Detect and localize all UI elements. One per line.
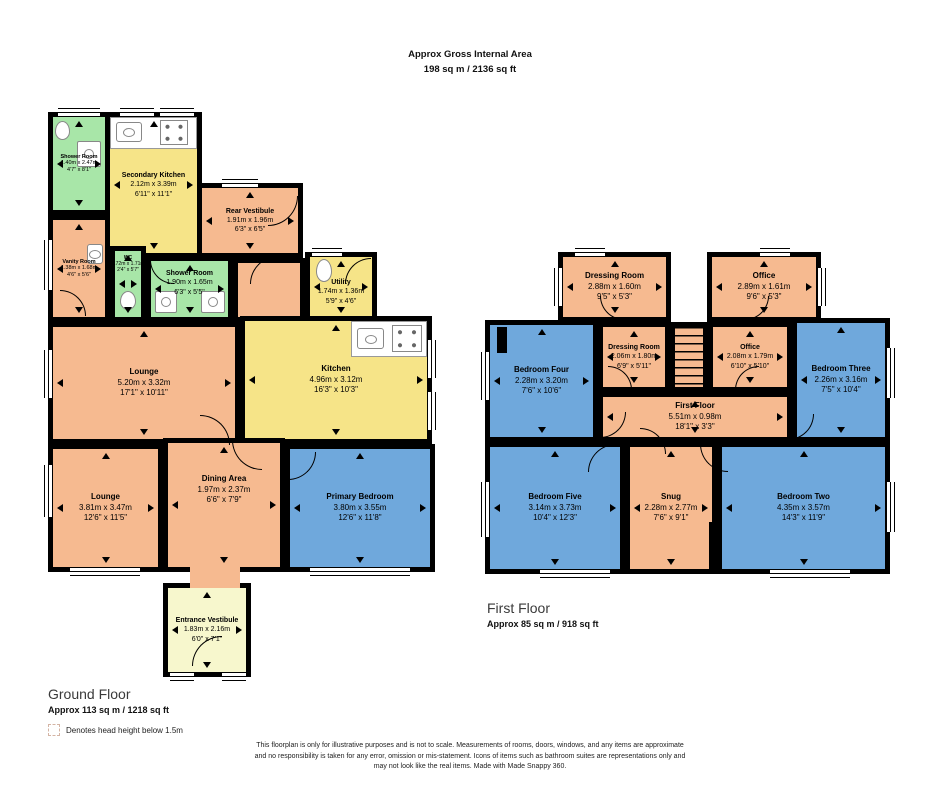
measure-arrow [420, 504, 426, 512]
measure-arrow [806, 283, 812, 291]
room-name: Office [727, 343, 773, 352]
room-name: Lounge [118, 367, 171, 377]
window-icon [44, 240, 53, 290]
measure-arrow [607, 353, 613, 361]
window-icon [44, 465, 53, 517]
measure-arrow [220, 557, 228, 563]
room-dims-imperial: 6'11" x 11'1" [122, 190, 185, 199]
room-name: Snug [645, 492, 698, 502]
room-dims-metric: 2.28m x 3.20m [514, 376, 569, 386]
room-dims-imperial: 17'1" x 10'11" [118, 388, 171, 398]
window-icon [481, 482, 490, 537]
measure-arrow [667, 451, 675, 457]
measure-arrow [634, 504, 640, 512]
room-dims-metric: 5.51m x 0.98m [669, 412, 722, 422]
window-icon [427, 392, 436, 430]
disclaimer-line-2: and no responsibility is taken for any e… [0, 752, 940, 763]
gross-internal-area-header: Approx Gross Internal Area 198 sq m / 21… [0, 48, 940, 77]
disclaimer: This floorplan is only for illustrative … [0, 741, 940, 773]
measure-arrow [655, 353, 661, 361]
room-name: Bedroom Four [514, 365, 569, 375]
room-name: Kitchen [310, 364, 363, 374]
stairs [670, 322, 708, 392]
measure-arrow [538, 427, 546, 433]
measure-arrow [75, 224, 83, 230]
toilet-icon [55, 121, 70, 140]
measure-arrow [124, 255, 132, 261]
measure-arrow [206, 217, 212, 225]
first-floor-area: Approx 85 sq m / 918 sq ft [487, 619, 599, 629]
room-dims-metric: 3.14m x 3.73m [528, 503, 581, 513]
room-dims-imperial: 4'6" x 5'6" [61, 272, 97, 279]
measure-arrow [875, 504, 881, 512]
room-name: Dressing Room [608, 343, 660, 352]
measure-arrow [610, 504, 616, 512]
measure-arrow [249, 376, 255, 384]
room-label: Shower Room 1.40m x 2.47m 4'7" x 8'1" [61, 154, 98, 174]
measure-arrow [702, 504, 708, 512]
head-height-icon [48, 724, 60, 736]
room-label: Bedroom Two 4.35m x 3.57m 14'3" x 11'9" [777, 492, 830, 523]
room-label: Secondary Kitchen 2.12m x 3.39m 6'11" x … [122, 171, 185, 198]
window-icon [170, 672, 194, 681]
room-dims-metric: 1.91m x 1.96m [226, 216, 274, 225]
legend-text: Denotes head height below 1.5m [66, 726, 183, 735]
measure-arrow [57, 265, 63, 273]
measure-arrow [172, 626, 178, 634]
room-name: Primary Bedroom [326, 492, 393, 502]
measure-arrow [187, 181, 193, 189]
room-dining-area: Dining Area 1.97m x 2.37m 6'6" x 7'9" [163, 438, 285, 572]
room-dims-metric: 1.38m x 1.68m [61, 265, 97, 272]
room-snug: Snug 2.28m x 2.77m 7'6" x 9'1" [625, 442, 717, 574]
window-icon [44, 350, 53, 398]
measure-arrow [220, 447, 228, 453]
measure-arrow [417, 376, 423, 384]
room-dims-imperial: 6'3" x 6'5" [226, 225, 274, 234]
room-dims-imperial: 7'6" x 10'6" [514, 386, 569, 396]
window-icon [886, 482, 895, 532]
measure-arrow [691, 401, 699, 407]
room-dims-metric: 3.80m x 3.55m [326, 503, 393, 513]
window-icon [575, 248, 605, 257]
room-dims-metric: 5.20m x 3.32m [118, 378, 171, 388]
room-kitchen: Kitchen 4.96m x 3.12m 16'3" x 10'3" [240, 316, 432, 444]
measure-arrow [150, 121, 158, 127]
room-name: Office [738, 271, 791, 281]
measure-arrow [746, 331, 754, 337]
room-label: Bedroom Five 3.14m x 3.73m 10'4" x 12'3" [528, 492, 581, 523]
room-dims-imperial: 12'6" x 11'5" [79, 513, 132, 523]
measure-arrow [800, 451, 808, 457]
measure-arrow [75, 200, 83, 206]
measure-arrow [717, 353, 723, 361]
measure-arrow [667, 559, 675, 565]
room-label: Lounge 5.20m x 3.32m 17'1" x 10'11" [118, 367, 171, 398]
room-dims-metric: 1.83m x 2.16m [176, 625, 239, 634]
window-icon [312, 248, 342, 257]
wall-chunk [709, 522, 721, 572]
room-dims-imperial: 6'3" x 5'5" [166, 288, 213, 297]
measure-arrow [630, 331, 638, 337]
measure-arrow [494, 504, 500, 512]
measure-arrow [148, 504, 154, 512]
room-dims-imperial: 10'4" x 12'3" [528, 513, 581, 523]
window-icon [770, 569, 850, 578]
measure-arrow [140, 429, 148, 435]
measure-arrow [75, 121, 83, 127]
measure-arrow [611, 261, 619, 267]
measure-arrow [95, 160, 101, 168]
measure-arrow [150, 243, 158, 249]
room-dims-metric: 1.97m x 2.37m [198, 485, 251, 495]
measure-arrow [716, 283, 722, 291]
window-icon [160, 108, 194, 117]
room-label: Primary Bedroom 3.80m x 3.55m 12'6" x 11… [326, 492, 393, 523]
measure-arrow [236, 626, 242, 634]
room-dims-imperial: 14'3" x 11'9" [777, 513, 830, 523]
measure-arrow [691, 427, 699, 433]
room-dims-imperial: 2'4" x 5'7" [111, 267, 144, 273]
room-dims-imperial: 7'5" x 10'4" [811, 385, 870, 395]
measure-arrow [567, 283, 573, 291]
room-name: Vanity Room [61, 259, 97, 266]
ground-floor-caption: Ground Floor [48, 686, 130, 702]
measure-arrow [57, 504, 63, 512]
measure-arrow [186, 265, 194, 271]
room-rear-vestibule: Rear Vestibule 1.91m x 1.96m 6'3" x 6'5" [197, 183, 303, 258]
room-name: Rear Vestibule [226, 207, 274, 216]
room-name: Dressing Room [585, 271, 644, 281]
measure-arrow [583, 377, 589, 385]
room-dims-imperial: 12'6" x 11'8" [326, 513, 393, 523]
room-label: Bedroom Four 2.28m x 3.20m 7'6" x 10'6" [514, 365, 569, 396]
measure-arrow [57, 379, 63, 387]
measure-arrow [837, 427, 845, 433]
window-icon [58, 108, 100, 117]
room-label: Lounge 3.81m x 3.47m 12'6" x 11'5" [79, 492, 132, 523]
window-icon [886, 348, 895, 398]
room-first-floor-landing: First Floor 5.51m x 0.98m 18'1" x 3'3" [598, 392, 792, 442]
measure-arrow [356, 557, 364, 563]
measure-arrow [630, 377, 638, 383]
room-name: Entrance Vestibule [176, 616, 239, 625]
room-label: Rear Vestibule 1.91m x 1.96m 6'3" x 6'5" [226, 207, 274, 234]
room-label: Kitchen 4.96m x 3.12m 16'3" x 10'3" [310, 364, 363, 395]
measure-arrow [656, 283, 662, 291]
measure-arrow [777, 413, 783, 421]
window-icon [554, 268, 563, 306]
hob-icon [392, 325, 422, 352]
measure-arrow [760, 261, 768, 267]
measure-arrow [332, 325, 340, 331]
room-shower-room-1: Shower Room 1.40m x 2.47m 4'7" x 8'1" [48, 112, 110, 215]
window-icon [120, 108, 154, 117]
measure-arrow [356, 453, 364, 459]
measure-arrow [124, 307, 132, 313]
room-name: Shower Room [61, 154, 98, 161]
room-dims-metric: 2.06m x 1.80m [608, 352, 660, 361]
room-dims-imperial: 6'6" x 7'9" [198, 495, 251, 505]
measure-arrow [95, 265, 101, 273]
room-wc: WC 0.72m x 1.71m 2'4" x 5'7" [110, 246, 146, 322]
room-name: Dining Area [198, 474, 251, 484]
measure-arrow [246, 192, 254, 198]
room-dims-metric: 1.40m x 2.47m [61, 160, 98, 167]
room-dims-metric: 4.35m x 3.57m [777, 503, 830, 513]
room-label: Vanity Room 1.38m x 1.68m 4'6" x 5'6" [61, 259, 97, 279]
room-bedroom-two: Bedroom Two 4.35m x 3.57m 14'3" x 11'9" [717, 442, 890, 574]
measure-arrow [102, 557, 110, 563]
measure-arrow [131, 280, 137, 288]
measure-arrow [494, 377, 500, 385]
header-title: Approx Gross Internal Area [0, 48, 940, 63]
room-dims-metric: 1.74m x 1.36m [318, 287, 364, 296]
room-dims-imperial: 7'6" x 9'1" [645, 513, 698, 523]
room-dims-imperial: 5'9" x 4'6" [318, 297, 364, 306]
room-office-1: Office 2.89m x 1.61m 9'6" x 5'3" [707, 252, 821, 322]
disclaimer-line-3: may not look like the real items. Made w… [0, 762, 940, 773]
measure-arrow [801, 376, 807, 384]
measure-arrow [875, 376, 881, 384]
measure-arrow [102, 453, 110, 459]
room-name: Bedroom Five [528, 492, 581, 502]
room-name: Bedroom Three [811, 364, 870, 374]
window-icon [760, 248, 790, 257]
room-lounge-2: Lounge 3.81m x 3.47m 12'6" x 11'5" [48, 444, 163, 572]
measure-arrow [155, 285, 161, 293]
sink-icon [116, 122, 142, 142]
room-dims-imperial: 4'7" x 8'1" [61, 167, 98, 174]
measure-arrow [218, 285, 224, 293]
room-name: Lounge [79, 492, 132, 502]
window-icon [427, 340, 436, 378]
room-dims-metric: 2.26m x 3.16m [811, 375, 870, 385]
room-name: Bedroom Two [777, 492, 830, 502]
sink-icon [357, 328, 384, 349]
measure-arrow [362, 283, 368, 291]
measure-arrow [140, 331, 148, 337]
wall-chunk [497, 327, 507, 353]
room-dims-metric: 2.89m x 1.61m [738, 282, 791, 292]
room-label: Snug 2.28m x 2.77m 7'6" x 9'1" [645, 492, 698, 523]
room-dims-metric: 3.81m x 3.47m [79, 503, 132, 513]
room-dims-imperial: 16'3" x 10'3" [310, 385, 363, 395]
measure-arrow [288, 217, 294, 225]
measure-arrow [332, 429, 340, 435]
measure-arrow [777, 353, 783, 361]
measure-arrow [246, 243, 254, 249]
measure-arrow [726, 504, 732, 512]
measure-arrow [551, 559, 559, 565]
measure-arrow [186, 307, 194, 313]
measure-arrow [114, 181, 120, 189]
room-label: Dining Area 1.97m x 2.37m 6'6" x 7'9" [198, 474, 251, 505]
measure-arrow [551, 451, 559, 457]
window-icon [70, 567, 140, 576]
measure-arrow [119, 280, 125, 288]
room-dims-metric: 2.28m x 2.77m [645, 503, 698, 513]
header-area: 198 sq m / 2136 sq ft [0, 63, 940, 78]
room-name: Secondary Kitchen [122, 171, 185, 180]
measure-arrow [837, 327, 845, 333]
window-icon [222, 672, 246, 681]
measure-arrow [337, 307, 345, 313]
window-icon [817, 268, 826, 306]
room-dims-metric: 2.88m x 1.60m [585, 282, 644, 292]
disclaimer-line-1: This floorplan is only for illustrative … [0, 741, 940, 752]
measure-arrow [314, 283, 320, 291]
window-icon [310, 567, 410, 576]
measure-arrow [800, 559, 808, 565]
room-secondary-kitchen: Secondary Kitchen 2.12m x 3.39m 6'11" x … [105, 112, 202, 258]
window-icon [540, 569, 610, 578]
measure-arrow [294, 504, 300, 512]
measure-arrow [57, 160, 63, 168]
room-dims-metric: 4.96m x 3.12m [310, 375, 363, 385]
window-icon [481, 352, 490, 400]
measure-arrow [203, 592, 211, 598]
room-label: Bedroom Three 2.26m x 3.16m 7'5" x 10'4" [811, 364, 870, 395]
hob-icon [160, 120, 188, 145]
porch-link [190, 558, 240, 588]
measure-arrow [270, 501, 276, 509]
floorplan-canvas: Approx Gross Internal Area 198 sq m / 21… [0, 0, 940, 788]
first-floor-caption: First Floor [487, 600, 550, 616]
measure-arrow [225, 379, 231, 387]
room-dims-metric: 2.08m x 1.79m [727, 352, 773, 361]
measure-arrow [337, 261, 345, 267]
measure-arrow [538, 329, 546, 335]
room-dims-metric: 2.12m x 3.39m [122, 180, 185, 189]
legend: Denotes head height below 1.5m [48, 724, 183, 736]
measure-arrow [172, 501, 178, 509]
ground-floor-area: Approx 113 sq m / 1218 sq ft [48, 705, 169, 715]
window-icon [222, 179, 258, 188]
